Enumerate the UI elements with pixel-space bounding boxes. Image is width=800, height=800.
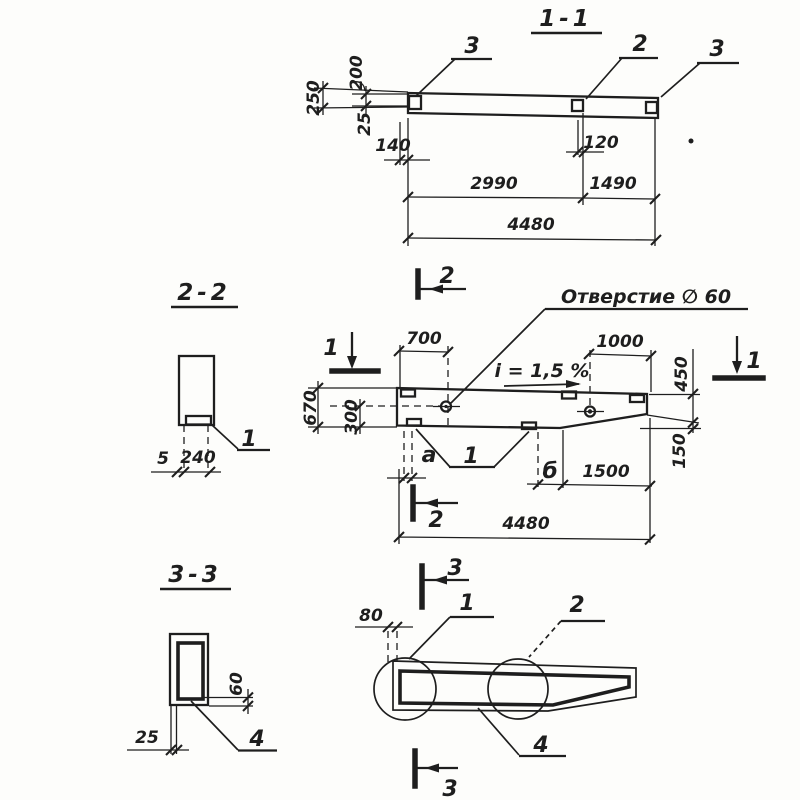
dim-1000-lines xyxy=(589,350,651,392)
dim-150-label: 150 xyxy=(670,433,690,469)
hole-note-label: Отверстие ∅ 60 xyxy=(561,286,731,308)
section-marker-3-top-label: 3 xyxy=(447,556,462,581)
section-marker-2-top-label: 2 xyxy=(439,264,454,289)
dim-80-ext-dashed xyxy=(388,631,397,663)
bottom-plate-right xyxy=(522,423,536,430)
hole-left-center xyxy=(444,405,447,408)
section-marker-1-right-label: 1 xyxy=(746,349,761,374)
dim-300-label: 300 xyxy=(342,399,362,435)
callout-1-bottom-leader xyxy=(409,617,450,659)
section-marker-1-left-arrow-icon xyxy=(347,356,357,369)
bottom-plate-left xyxy=(407,419,421,426)
dim-25-33-label: 25 xyxy=(135,728,159,748)
section-marker-3-top-arrow-icon xyxy=(433,576,447,585)
section-2-2-outline xyxy=(179,356,214,425)
callout-1-bottom-label: 1 xyxy=(459,591,474,616)
dim-2990-label: 2990 xyxy=(470,174,517,194)
view-3-3: 3-3 25 60 4 xyxy=(127,562,277,755)
hole-left xyxy=(433,402,460,412)
top-plate-left xyxy=(401,390,415,397)
section-marker-3-bottom-arrow-icon xyxy=(425,764,439,773)
dim-700-lines xyxy=(399,345,449,387)
label-a: а xyxy=(422,443,437,468)
drawing-sheet: 1-1 3 2 3 250 200 25 140 120 xyxy=(0,0,800,800)
dim-450-label: 450 xyxy=(672,356,692,393)
view-1-1-title: 1-1 xyxy=(539,6,593,32)
label-b: б xyxy=(542,459,557,484)
callout-1-leader-2-2 xyxy=(212,425,238,449)
callout-3-right-label: 3 xyxy=(709,37,724,62)
callout-1-elev-label: 1 xyxy=(463,444,478,469)
callout-2-leader xyxy=(586,58,622,99)
embed-plate-right xyxy=(646,102,657,113)
dim-670-label: 670 xyxy=(301,390,321,426)
hole-right xyxy=(577,407,604,417)
callout-1-label-2-2: 1 xyxy=(241,427,256,452)
section-3-3-channel xyxy=(178,643,203,699)
elevation-view: 2 Отверстие ∅ 60 1 1 700 1000 i = 1,5 % xyxy=(301,264,763,545)
dim-120-label: 120 xyxy=(583,133,619,153)
callout-4-bottom-label: 4 xyxy=(532,733,548,758)
top-plate-mid xyxy=(562,392,576,399)
callout-2-label: 2 xyxy=(632,32,647,57)
dim-240-label: 240 xyxy=(180,448,216,468)
bottom-view: 3 80 1 2 4 3 xyxy=(355,556,636,800)
hole-right-center xyxy=(588,409,592,413)
dim-80-label: 80 xyxy=(359,606,383,626)
top-plate-right xyxy=(630,395,644,402)
view-2-2-title: 2-2 xyxy=(177,280,231,306)
dim-25-label: 25 xyxy=(355,112,375,136)
dim-1000-label: 1000 xyxy=(596,332,643,352)
view-3-3-title: 3-3 xyxy=(168,562,222,588)
slope-label: i = 1,5 % xyxy=(495,360,590,382)
embed-plate-left xyxy=(409,96,421,109)
section-marker-1-right-arrow-icon xyxy=(732,361,742,374)
view-2-2: 2-2 5 240 1 xyxy=(151,280,270,477)
dim-1500-label: 1500 xyxy=(582,462,629,482)
callout-3-right-leader xyxy=(661,63,700,97)
dim-5-label: 5 xyxy=(157,449,169,469)
dim-200-label: 200 xyxy=(347,55,367,91)
stray-ink-dot xyxy=(689,139,694,144)
embed-plate-mid xyxy=(572,100,583,111)
callout-4-bottom-leader xyxy=(478,708,519,755)
dim-140-label: 140 xyxy=(375,136,411,156)
dim-250-label: 250 xyxy=(304,80,324,116)
dim-700-label: 700 xyxy=(406,329,442,349)
beam-plan-outline xyxy=(408,93,658,118)
view-1-1: 1-1 3 2 3 250 200 25 140 120 xyxy=(304,6,739,246)
callout-4-33-leader xyxy=(191,701,238,750)
section-marker-3-bottom-label: 3 xyxy=(442,777,457,800)
section-marker-1-left-label: 1 xyxy=(323,336,338,361)
callout-3-left-label: 3 xyxy=(464,34,479,59)
technical-drawing: 1-1 3 2 3 250 200 25 140 120 xyxy=(0,0,800,800)
dim-1490-label: 1490 xyxy=(589,174,636,194)
section-marker-2-bottom-label: 2 xyxy=(428,508,443,533)
dim-4480-elev-label: 4480 xyxy=(501,514,549,534)
callout-2-bottom-leader xyxy=(529,621,561,657)
dim-4480-label: 4480 xyxy=(506,215,554,235)
section-marker-2-bottom-arrow-icon xyxy=(424,499,438,508)
section-2-2-plate xyxy=(186,416,211,425)
callout-3-left-leader xyxy=(416,59,455,96)
callout-2-bottom-label: 2 xyxy=(569,593,584,618)
dim-60-label: 60 xyxy=(227,672,247,696)
callout-4-33-label: 4 xyxy=(248,727,264,752)
